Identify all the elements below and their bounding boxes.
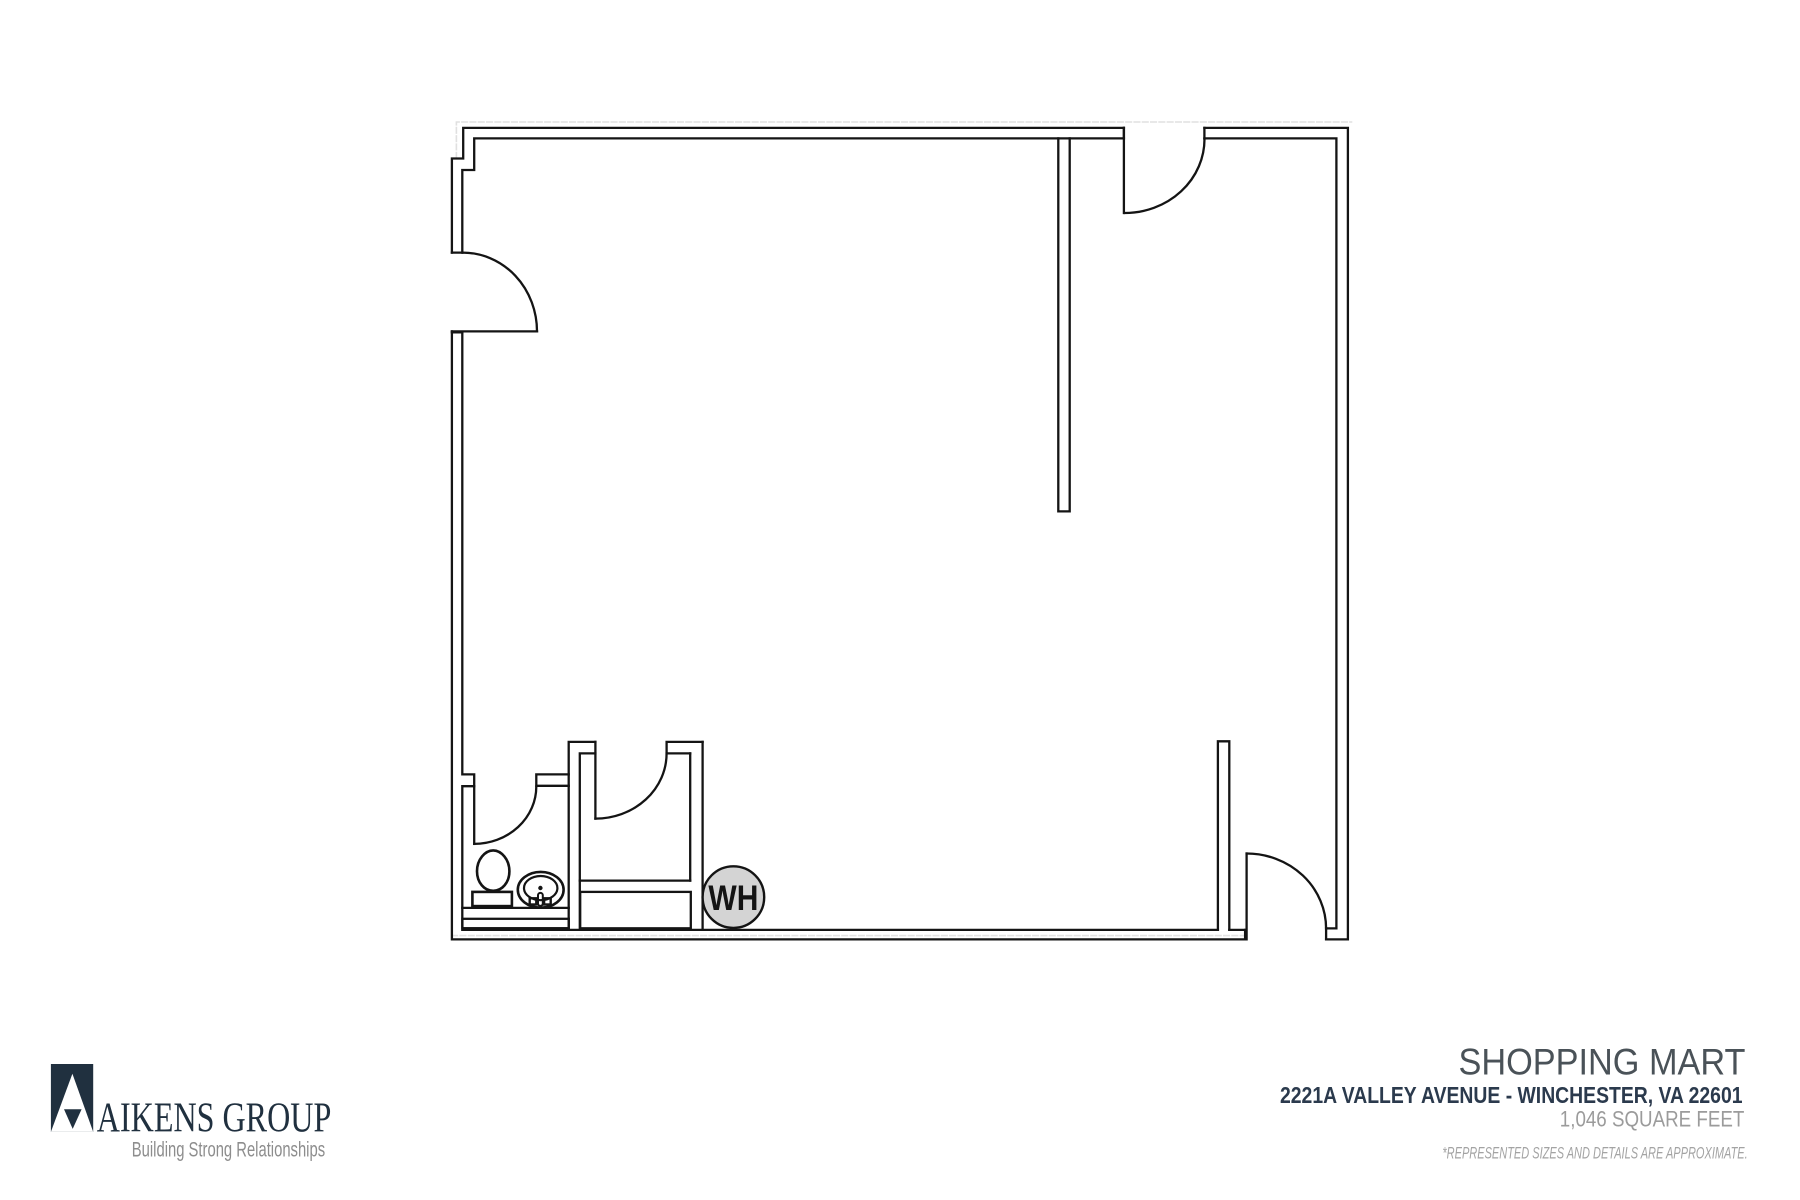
svg-text:WH: WH xyxy=(708,879,758,918)
svg-text:*REPRESENTED SIZES AND DETAILS: *REPRESENTED SIZES AND DETAILS ARE APPRO… xyxy=(1442,1145,1747,1163)
svg-text:2221A VALLEY AVENUE - WINCHEST: 2221A VALLEY AVENUE - WINCHESTER, VA 226… xyxy=(1280,1082,1743,1108)
svg-text:SHOPPING MART: SHOPPING MART xyxy=(1459,1040,1746,1082)
svg-text:AIKENS GROUP: AIKENS GROUP xyxy=(97,1096,331,1142)
svg-text:Building Strong Relationships: Building Strong Relationships xyxy=(132,1138,325,1162)
svg-text:1,046 SQUARE FEET: 1,046 SQUARE FEET xyxy=(1560,1106,1745,1131)
